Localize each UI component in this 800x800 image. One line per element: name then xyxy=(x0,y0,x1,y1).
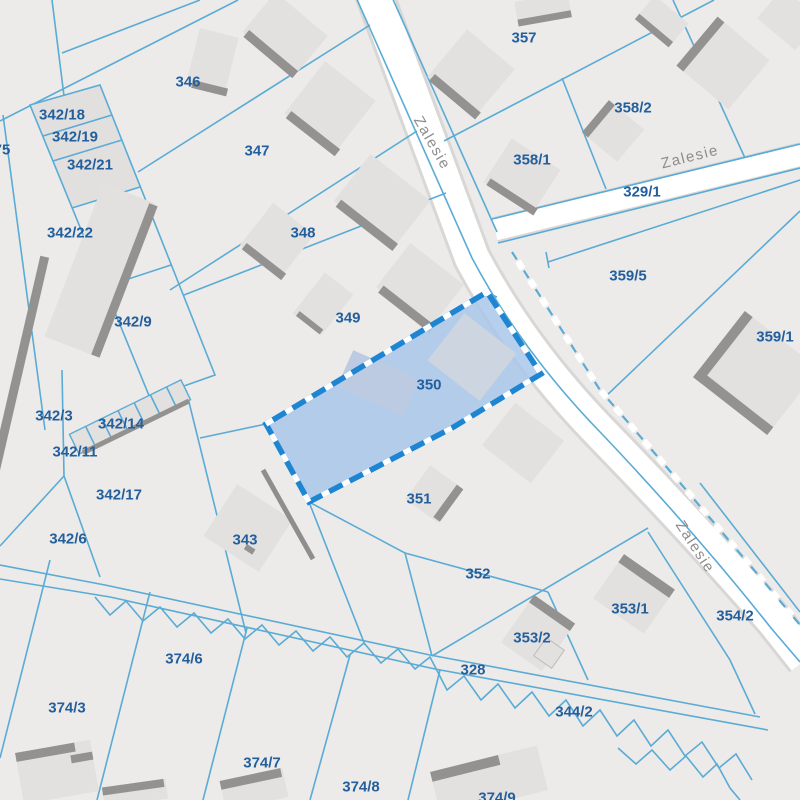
parcel-label-347[interactable]: 347 xyxy=(244,143,269,160)
parcel-label-343[interactable]: 343 xyxy=(232,532,257,549)
parcel-label-353-2[interactable]: 353/2 xyxy=(513,630,551,647)
parcel-label-374-3[interactable]: 374/3 xyxy=(48,700,86,717)
parcel-label-374-9[interactable]: 374/9 xyxy=(478,790,516,800)
parcel-label-75[interactable]: 75 xyxy=(0,142,10,159)
parcel-label-342-17[interactable]: 342/17 xyxy=(96,487,142,504)
parcel-label-342-19[interactable]: 342/19 xyxy=(52,129,98,146)
parcel-label-348[interactable]: 348 xyxy=(290,225,315,242)
parcel-label-351[interactable]: 351 xyxy=(406,491,431,508)
parcel-label-350[interactable]: 350 xyxy=(416,377,441,394)
parcel-label-349[interactable]: 349 xyxy=(335,310,360,327)
parcel-label-357[interactable]: 357 xyxy=(511,30,536,47)
parcel-label-342-11[interactable]: 342/11 xyxy=(52,444,97,461)
parcel-label-342-18[interactable]: 342/18 xyxy=(39,107,85,124)
parcel-label-353-1[interactable]: 353/1 xyxy=(611,601,649,618)
parcel-label-359-5[interactable]: 359/5 xyxy=(609,268,647,285)
parcel-label-329-1[interactable]: 329/1 xyxy=(623,184,661,201)
parcel-label-342-22[interactable]: 342/22 xyxy=(47,225,93,242)
parcel-label-342-6[interactable]: 342/6 xyxy=(49,531,87,548)
parcel-label-328[interactable]: 328 xyxy=(460,662,485,679)
parcel-label-359-1[interactable]: 359/1 xyxy=(756,329,794,346)
cadastral-map[interactable]: 75 342/18 342/19 342/21 342/22 342/9 346… xyxy=(0,0,800,800)
parcel-label-342-21[interactable]: 342/21 xyxy=(67,157,113,174)
parcel-label-342-14[interactable]: 342/14 xyxy=(98,416,144,433)
parcel-label-346[interactable]: 346 xyxy=(175,74,200,91)
parcel-label-374-8[interactable]: 374/8 xyxy=(342,779,380,796)
parcel-label-358-2[interactable]: 358/2 xyxy=(614,100,652,117)
parcel-label-374-7[interactable]: 374/7 xyxy=(243,755,281,772)
map-canvas xyxy=(0,0,800,800)
parcel-label-352[interactable]: 352 xyxy=(465,566,490,583)
parcel-label-344-2[interactable]: 344/2 xyxy=(555,704,593,721)
parcel-label-354-2[interactable]: 354/2 xyxy=(716,608,754,625)
parcel-label-342-3[interactable]: 342/3 xyxy=(35,408,73,425)
parcel-label-342-9[interactable]: 342/9 xyxy=(114,314,152,331)
parcel-label-374-6[interactable]: 374/6 xyxy=(165,651,203,668)
parcel-label-358-1[interactable]: 358/1 xyxy=(513,152,551,169)
